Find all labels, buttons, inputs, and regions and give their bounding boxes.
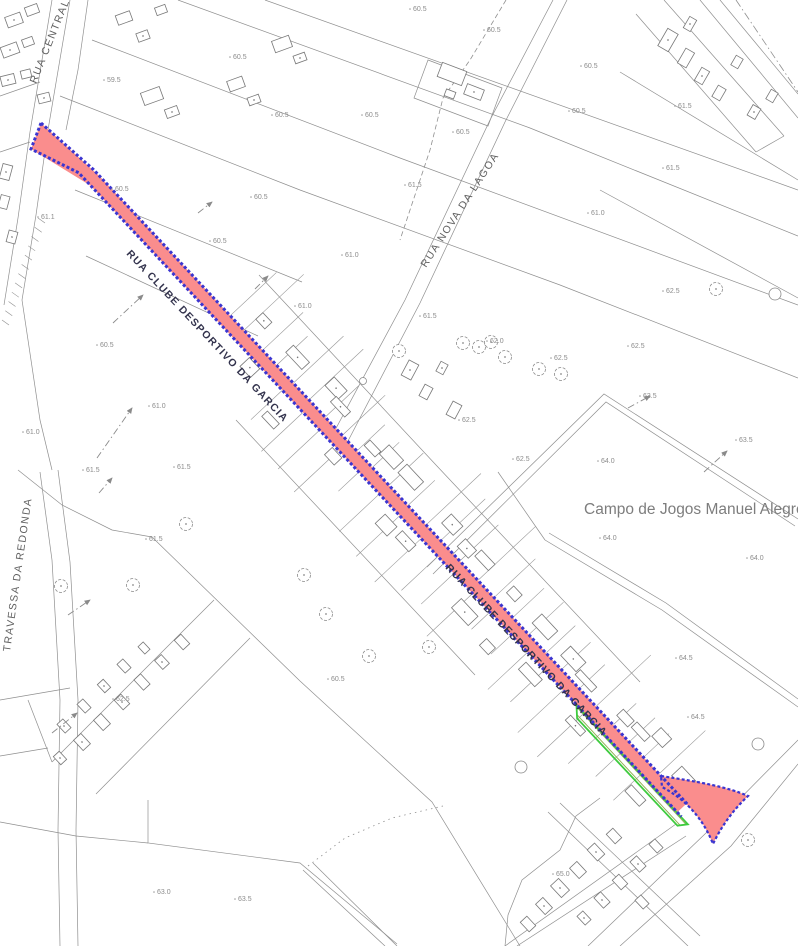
building (37, 92, 51, 104)
parcel-line (231, 272, 277, 315)
spot-elevation-value: 64.0 (603, 535, 617, 542)
spot-elevation-dot (639, 395, 641, 397)
spot-elevation-dot (452, 131, 454, 133)
spot-elevation-dot (568, 110, 570, 112)
building (694, 67, 709, 84)
spot-elevation-dot (327, 678, 329, 680)
spot-elevation: 61.0 (148, 403, 166, 410)
tree-trunk-dot (303, 574, 305, 576)
building-outline (446, 401, 462, 419)
building (612, 874, 627, 890)
spot-elevation-dot (746, 557, 748, 559)
spot-elevation: 63.5 (234, 896, 252, 903)
building (606, 828, 621, 844)
spot-elevation: 61.0 (341, 252, 359, 259)
tree-icon (298, 569, 311, 582)
building-outline (140, 86, 163, 105)
building (442, 514, 463, 535)
parcel-line (636, 14, 756, 152)
building (97, 679, 110, 693)
building (766, 89, 778, 103)
spot-elevation-value: 61.5 (408, 182, 422, 189)
building (379, 445, 403, 470)
building (24, 4, 39, 17)
spot-elevation: 62.5 (662, 288, 680, 295)
spot-elevation-value: 64.5 (691, 714, 705, 721)
building (395, 531, 416, 552)
spot-elevation-value: 60.5 (413, 6, 427, 13)
spot-elevation-value: 61.5 (177, 464, 191, 471)
spot-elevation-value: 61.0 (152, 403, 166, 410)
parcel-line (421, 574, 453, 604)
hatch-tick (15, 283, 22, 288)
spot-elevation-value: 62.5 (516, 456, 530, 463)
tree-trunk-dot (504, 356, 506, 358)
hatch-tick (5, 311, 12, 316)
spot-elevation: 59.5 (103, 77, 121, 84)
building-outline (612, 874, 627, 890)
building (419, 384, 433, 400)
spot-elevation-value: 61.0 (591, 210, 605, 217)
spot-elevation-value: 61.0 (26, 429, 40, 436)
building-outline (174, 634, 189, 650)
building (446, 401, 462, 419)
tree-icon (742, 834, 755, 847)
building-outline (475, 550, 495, 571)
spot-elevation-value: 61.5 (86, 467, 100, 474)
building (747, 105, 761, 120)
parcel-line (338, 472, 358, 491)
parcel-line (518, 691, 563, 733)
map-canvas: RUA CENTRAL RUA NOVA DA LAGOA TRAVESSA D… (0, 0, 798, 946)
building (649, 839, 663, 853)
street-label-rua-clube-desportivo-1: RUA CLUBE DESPORTIVO DA GARCIA (124, 248, 291, 425)
parcel-line (40, 472, 60, 946)
boundary-dashed-line (308, 806, 443, 866)
building-outline (94, 713, 111, 730)
parcel-line (303, 870, 385, 946)
spot-elevation-dot (271, 114, 273, 116)
spot-elevation: 60.5 (452, 129, 470, 136)
building (536, 897, 553, 914)
building-outline (570, 861, 587, 878)
building-outline (134, 674, 150, 690)
spot-elevation: 61.5 (145, 536, 163, 543)
building-outline (437, 62, 467, 85)
parcel-line (478, 527, 535, 580)
building-outline (77, 699, 91, 713)
building (293, 52, 307, 64)
tree-icon (55, 580, 68, 593)
building (138, 642, 150, 654)
spot-elevation-value: 60.5 (100, 342, 114, 349)
building-outline (506, 586, 522, 602)
spot-elevation-value: 64.0 (750, 555, 764, 562)
spot-elevation: 64.0 (746, 555, 764, 562)
parcel-line (313, 863, 397, 946)
spot-elevation-dot (409, 8, 411, 10)
building (164, 106, 179, 119)
spot-elevation: 60.5 (271, 112, 289, 119)
spot-elevation-value: 60.5 (456, 129, 470, 136)
spot-elevation: 61.5 (662, 165, 680, 172)
spot-elevation-value: 63.0 (157, 889, 171, 896)
spot-elevation: 61.0 (294, 303, 312, 310)
tree-trunk-dot (715, 288, 717, 290)
building (0, 42, 20, 58)
building (117, 659, 131, 673)
street-label-travessa-da-redonda: TRAVESSA DA REDONDA (1, 497, 35, 653)
building (570, 861, 587, 878)
spot-elevation-value: 60.5 (331, 676, 345, 683)
annotation-campo-de-jogos: Campo de Jogos Manuel Alegre (584, 501, 798, 518)
building-outline (138, 642, 150, 654)
spot-elevation: 60.5 (361, 112, 379, 119)
parcel-line (339, 494, 379, 531)
parcel-line (18, 470, 152, 537)
parcel-line (588, 740, 798, 946)
spot-elevation-value: 60.5 (365, 112, 379, 119)
hatch-tick (28, 246, 35, 251)
slope-arrow-icon (704, 451, 727, 472)
building (577, 911, 591, 925)
slope-arrow-icon (113, 295, 143, 323)
spot-elevation-value: 60.5 (213, 238, 227, 245)
spot-elevation-dot (587, 212, 589, 214)
parcel-line (22, 300, 52, 470)
building-outline (649, 839, 663, 853)
tree-trunk-dot (538, 368, 540, 370)
spot-elevation-dot (148, 405, 150, 407)
spot-elevation: 61.1 (37, 214, 55, 221)
parcel-line (178, 0, 798, 236)
spot-elevation-dot (103, 79, 105, 81)
building-outline (115, 11, 133, 26)
spot-elevation-value: 63.5 (643, 393, 657, 400)
spot-elevation-dot (483, 29, 485, 31)
spot-elevation-dot (229, 56, 231, 58)
building (364, 440, 381, 457)
hatch-tick (31, 237, 38, 242)
parcel-line (96, 638, 250, 794)
parcel-line (700, 0, 798, 118)
spot-elevation-dot (419, 315, 421, 317)
tree-icon (533, 363, 546, 376)
building-outline (532, 614, 558, 640)
spot-elevation-dot (112, 698, 114, 700)
spot-elevation-value: 60.5 (275, 112, 289, 119)
hatch-tick (2, 320, 9, 325)
building (437, 62, 467, 85)
parcel-line (0, 142, 30, 152)
building-outline (398, 464, 424, 490)
parcel-line (433, 402, 795, 574)
building-outline (0, 195, 10, 210)
building (94, 713, 111, 730)
building (464, 84, 485, 101)
building (683, 16, 696, 31)
spot-elevation: 64.0 (597, 458, 615, 465)
spot-elevation-dot (550, 357, 552, 359)
hatch-tick (18, 274, 25, 279)
spot-elevation-value: 60.5 (584, 63, 598, 70)
spot-elevation-dot (82, 469, 84, 471)
spot-elevation-dot (458, 419, 460, 421)
tree-trunk-dot (560, 373, 562, 375)
building-outline (21, 36, 34, 47)
tree-icon (363, 650, 376, 663)
slope-arrow-icon (97, 408, 132, 458)
parcel-line (60, 96, 798, 378)
spot-elevation: 60.5 (250, 194, 268, 201)
spot-elevation: 60.5 (409, 6, 427, 13)
spot-elevation-dot (145, 538, 147, 540)
building-outline (375, 514, 397, 536)
building (0, 163, 13, 180)
tree-trunk-dot (60, 585, 62, 587)
tree-trunk-dot (368, 655, 370, 657)
building-outline (379, 445, 403, 470)
street-label-rua-nova-da-lagoa: RUA NOVA DA LAGOA (418, 150, 501, 269)
parcel-line (66, 0, 88, 130)
tree-trunk-dot (132, 584, 134, 586)
spot-elevation-value: 60.5 (115, 186, 129, 193)
building (5, 12, 24, 28)
building (457, 539, 476, 558)
building (0, 195, 10, 210)
building (0, 73, 16, 86)
building-outline (606, 828, 621, 844)
parcel-line (620, 72, 798, 180)
building (154, 4, 167, 15)
spot-elevation: 63.0 (153, 889, 171, 896)
spot-elevation: 64.5 (687, 714, 705, 721)
spot-elevation: 63.5 (735, 437, 753, 444)
building-outline (652, 728, 672, 748)
slope-arrow-icon (68, 600, 90, 615)
building (53, 751, 66, 765)
spot-elevation: 64.0 (599, 535, 617, 542)
parcel-line (756, 136, 784, 152)
tree-icon (127, 579, 140, 592)
spot-elevation: 63.5 (639, 393, 657, 400)
spot-elevation-value: 61.0 (345, 252, 359, 259)
spot-elevation-value: 61.5 (149, 536, 163, 543)
building (271, 35, 292, 52)
building (174, 634, 189, 650)
spot-elevation-dot (735, 439, 737, 441)
tree-trunk-dot (325, 613, 327, 615)
spot-elevation-dot (674, 105, 676, 107)
spot-elevation-dot (404, 184, 406, 186)
spot-elevation: 61.5 (82, 467, 100, 474)
building-outline (617, 709, 634, 727)
spot-elevation-dot (512, 458, 514, 460)
building (256, 313, 272, 329)
spot-elevation: 60.5 (229, 54, 247, 61)
spot-elevation-dot (486, 340, 488, 342)
spot-elevation-value: 65.0 (556, 871, 570, 878)
spot-elevation-value: 61.5 (423, 313, 437, 320)
spot-elevation: 62.5 (627, 343, 645, 350)
slope-arrow-icon (99, 478, 112, 493)
spot-elevation: 61.0 (587, 210, 605, 217)
building (731, 55, 743, 69)
building (21, 36, 34, 47)
spot-elevation: 65.0 (552, 871, 570, 878)
spot-elevation-dot (662, 290, 664, 292)
spot-elevation-dot (687, 716, 689, 718)
building (587, 843, 605, 861)
building (77, 699, 91, 713)
tree-icon (393, 345, 406, 358)
building-outline (271, 35, 292, 52)
spot-elevation-dot (341, 254, 343, 256)
spot-elevation: 62.5 (458, 417, 476, 424)
cadastral-map: RUA CENTRAL RUA NOVA DA LAGOA TRAVESSA D… (0, 0, 798, 946)
parcel-line (343, 395, 386, 435)
spot-elevation-dot (250, 196, 252, 198)
spot-elevation-value: 64.0 (601, 458, 615, 465)
spot-elevation-value: 62.5 (462, 417, 476, 424)
spot-elevation-dot (234, 898, 236, 900)
spot-elevation-dot (675, 657, 677, 659)
spot-elevation-value: 60.5 (254, 194, 268, 201)
parcel-line (0, 748, 48, 756)
street-label-rua-clube-desportivo-2: RUA CLUBE DESPORTIVO DA GARCIA (443, 562, 610, 739)
parcel-line (259, 275, 640, 682)
parcel-line (596, 655, 650, 706)
tree-trunk-dot (185, 523, 187, 525)
building-outline (731, 55, 743, 69)
spot-elevation: 60.5 (209, 238, 227, 245)
spot-elevation-value: 63.5 (739, 437, 753, 444)
building-outline (712, 85, 726, 101)
building-outline (154, 4, 167, 15)
spot-elevation-dot (597, 460, 599, 462)
parcel-line (28, 700, 52, 762)
spot-elevation-dot (111, 188, 113, 190)
building (658, 28, 678, 51)
spot-elevation-dot (580, 65, 582, 67)
spot-elevation-dot (662, 167, 664, 169)
tree-trunk-dot (428, 646, 430, 648)
tree-icon (515, 761, 527, 773)
building (520, 916, 535, 932)
spot-elevation-value: 60.5 (233, 54, 247, 61)
building (57, 719, 71, 733)
spot-elevation-dot (209, 240, 211, 242)
spot-elevation-value: 62.5 (116, 696, 130, 703)
parcel-line (263, 312, 303, 350)
tree-icon (499, 351, 512, 364)
building (401, 360, 419, 380)
tree-trunk-dot (462, 342, 464, 344)
building (136, 30, 150, 43)
spot-elevation-dot (627, 345, 629, 347)
spot-elevation-dot (294, 305, 296, 307)
parcel-line (600, 190, 798, 298)
building (6, 230, 18, 244)
hatch-tick (9, 301, 16, 306)
building (140, 86, 163, 105)
tree-icon (457, 337, 470, 350)
tree-trunk-dot (398, 350, 400, 352)
spot-elevation-value: 60.5 (572, 108, 586, 115)
spot-elevation-value: 59.5 (107, 77, 121, 84)
building (617, 709, 634, 727)
tree-icon (473, 341, 486, 354)
parcel-line (278, 430, 319, 468)
spot-elevation-dot (599, 537, 601, 539)
spot-elevation-dot (153, 891, 155, 893)
tree-icon (423, 641, 436, 654)
hatch-tick (12, 292, 19, 297)
spot-elevation: 60.5 (483, 27, 501, 34)
parcel-line (58, 470, 78, 946)
building (74, 733, 91, 750)
spot-elevation-value: 62.0 (490, 338, 504, 345)
building-outline (419, 384, 433, 400)
building-outline (24, 4, 39, 17)
spot-elevation: 62.5 (550, 355, 568, 362)
spot-elevation-value: 62.5 (554, 355, 568, 362)
parcel-line (720, 0, 798, 94)
manhole-icon (360, 378, 367, 385)
spot-elevation-value: 62.5 (666, 288, 680, 295)
spot-elevation-value: 63.5 (238, 896, 252, 903)
building-outline (364, 440, 381, 457)
spot-elevation-value: 61.1 (41, 214, 55, 221)
building (712, 85, 726, 101)
building (652, 728, 672, 748)
spot-elevation: 64.5 (675, 655, 693, 662)
parcel-line (498, 472, 545, 540)
spot-elevation: 61.0 (22, 429, 40, 436)
spot-elevation: 62.5 (512, 456, 530, 463)
building (115, 11, 133, 26)
spot-elevation-dot (22, 431, 24, 433)
building (436, 361, 448, 374)
tree-trunk-dot (478, 346, 480, 348)
building (532, 614, 558, 640)
building (630, 856, 646, 872)
tree-icon (320, 608, 333, 621)
building-outline (117, 659, 131, 673)
parcel-line (152, 537, 520, 946)
spot-elevation-dot (552, 873, 554, 875)
map-labels: RUA CENTRAL RUA NOVA DA LAGOA TRAVESSA D… (1, 0, 798, 739)
spot-elevation: 61.5 (173, 464, 191, 471)
boundary-dashed-line (736, 0, 798, 92)
spot-elevation-dot (361, 114, 363, 116)
spot-elevation-dot (173, 466, 175, 468)
hatch-tick (35, 227, 42, 232)
slope-arrow-icon (198, 202, 212, 213)
parcel-line (0, 822, 148, 843)
parcel-line (537, 713, 584, 757)
building (375, 514, 397, 536)
spot-elevation-dot (96, 344, 98, 346)
tree-icon (555, 368, 568, 381)
tree-trunk-dot (747, 839, 749, 841)
building-outline (766, 89, 778, 103)
building-outline (520, 916, 535, 932)
spot-elevation-value: 61.5 (666, 165, 680, 172)
building (551, 878, 570, 897)
spot-elevation-dot (37, 216, 39, 218)
building (506, 586, 522, 602)
